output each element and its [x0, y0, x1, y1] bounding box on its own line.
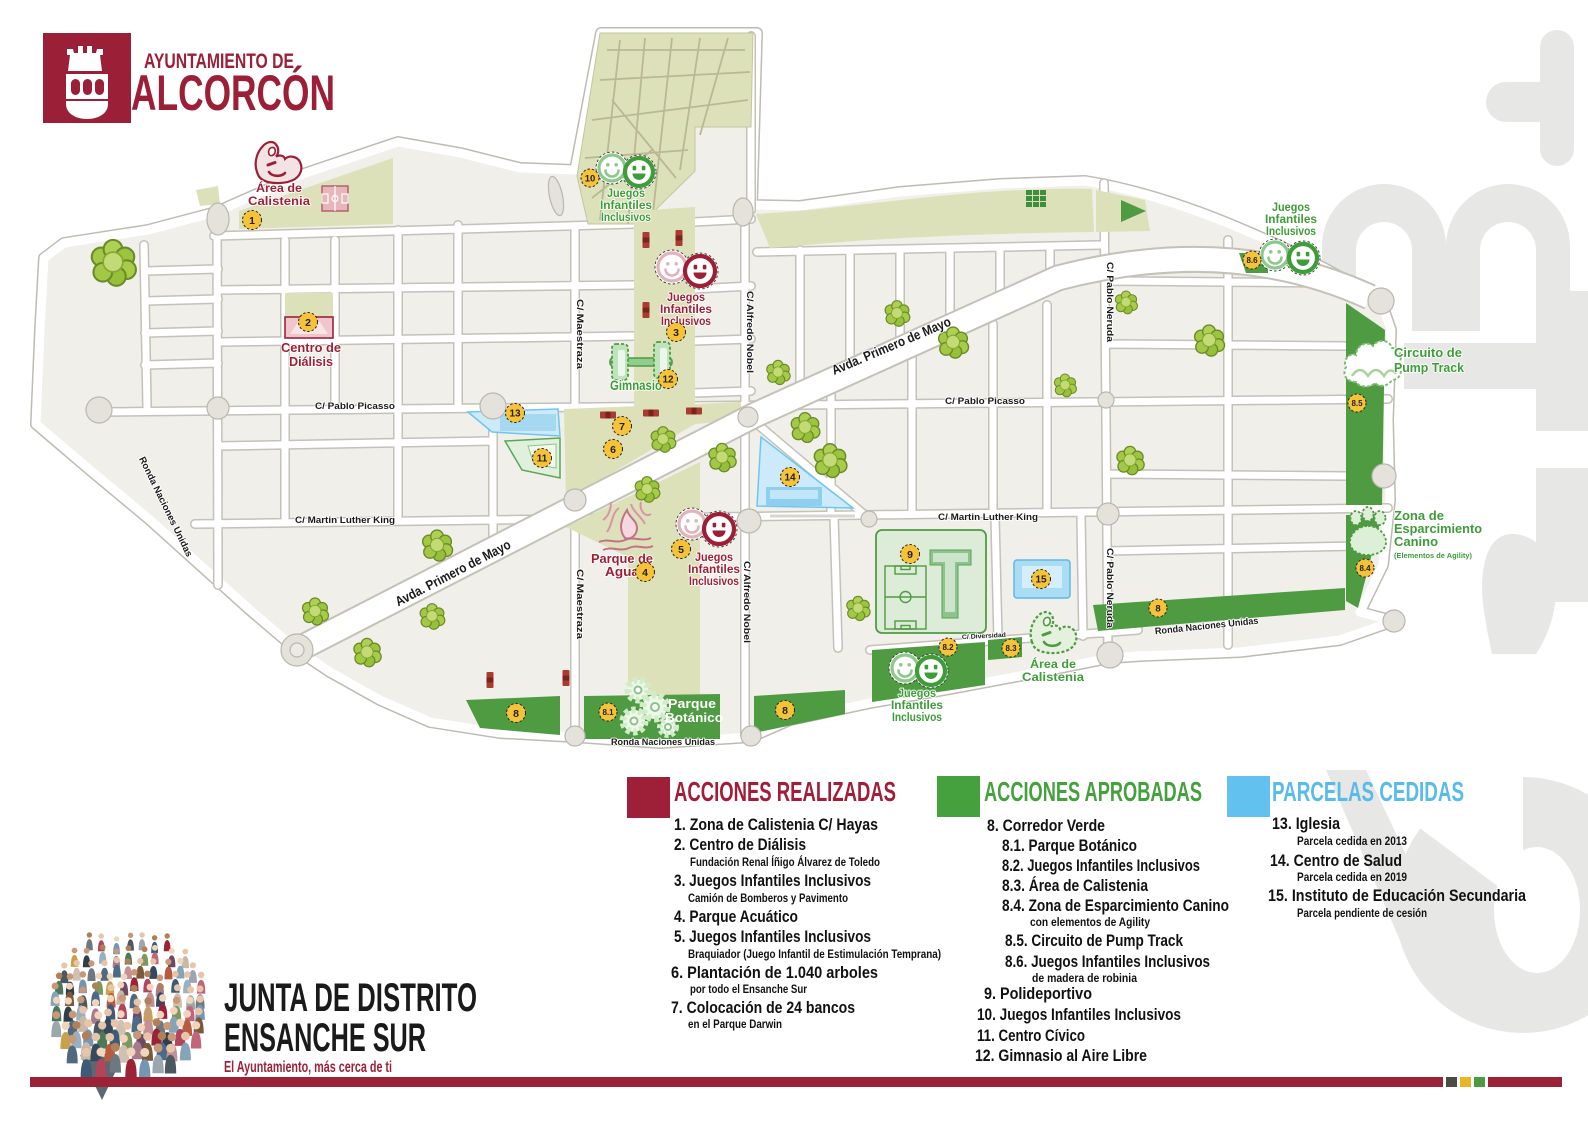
svg-text:5. Juegos Infantiles Inclusivo: 5. Juegos Infantiles Inclusivos [674, 927, 871, 946]
svg-text:Camión de Bomberos y Pavimento: Camión de Bomberos y Pavimento [688, 891, 848, 905]
svg-text:10: 10 [585, 173, 596, 184]
svg-text:Inclusivos: Inclusivos [892, 712, 942, 724]
svg-text:Parque: Parque [668, 696, 716, 711]
svg-text:C/ Pablo Neruda: C/ Pablo Neruda [1104, 262, 1115, 343]
svg-text:3: 3 [673, 327, 679, 339]
svg-text:8: 8 [513, 708, 519, 720]
svg-text:Juegos: Juegos [607, 188, 645, 200]
svg-text:Juegos: Juegos [1272, 202, 1310, 214]
svg-text:PARCELAS CEDIDAS: PARCELAS CEDIDAS [1272, 776, 1464, 807]
svg-text:Parcela cedida en 2013: Parcela cedida en 2013 [1297, 834, 1407, 848]
svg-text:C/ Alfredo Nobel: C/ Alfredo Nobel [744, 291, 755, 373]
svg-text:Ronda Naciones Unidas: Ronda Naciones Unidas [611, 737, 715, 748]
svg-text:de madera de robinia: de madera de robinia [1032, 971, 1137, 985]
svg-text:ACCIONES REALIZADAS: ACCIONES REALIZADAS [674, 776, 896, 807]
svg-text:por todo el Ensanche Sur: por todo el Ensanche Sur [690, 982, 807, 996]
svg-text:con elementos de Agility: con elementos de Agility [1030, 915, 1150, 929]
svg-text:Braquiador (Juego Infantil de: Braquiador (Juego Infantil de Estimulaci… [688, 947, 941, 961]
svg-text:ALCORCÓN: ALCORCÓN [131, 65, 335, 121]
svg-text:ENSANCHE SUR: ENSANCHE SUR [224, 1016, 426, 1060]
svg-text:15. Instituto de Educación Sec: 15. Instituto de Educación Secundaria [1268, 886, 1526, 905]
svg-text:12. Gimnasio al Aire Libre: 12. Gimnasio al Aire Libre [975, 1046, 1147, 1065]
svg-text:Parcela pendiente de cesión: Parcela pendiente de cesión [1297, 906, 1427, 920]
svg-text:13: 13 [509, 409, 521, 420]
svg-text:8.2: 8.2 [942, 643, 954, 652]
svg-text:ACCIONES APROBADAS: ACCIONES APROBADAS [984, 776, 1202, 807]
svg-text:C/ Pablo Picasso: C/ Pablo Picasso [315, 401, 395, 412]
svg-text:Juegos: Juegos [898, 688, 936, 700]
svg-text:7. Colocación de 24 bancos: 7. Colocación de 24 bancos [671, 998, 855, 1017]
svg-text:6. Plantación de 1.040 arboles: 6. Plantación de 1.040 arboles [671, 963, 878, 982]
svg-text:Canino: Canino [1394, 535, 1438, 549]
svg-text:11. Centro Cívico: 11. Centro Cívico [977, 1026, 1085, 1045]
svg-text:Gimnasio: Gimnasio [610, 377, 662, 393]
svg-text:Parcela cedida en 2019: Parcela cedida en 2019 [1297, 870, 1407, 884]
svg-text:Agua: Agua [605, 565, 640, 579]
svg-text:9: 9 [907, 549, 913, 561]
svg-text:(Elementos de Agility): (Elementos de Agility) [1394, 551, 1472, 560]
svg-text:8.2. Juegos Infantiles Inclusi: 8.2. Juegos Infantiles Inclusivos [1002, 856, 1200, 875]
svg-text:8.5: 8.5 [1351, 399, 1363, 408]
svg-text:C/ Martin Luther King: C/ Martin Luther King [938, 512, 1038, 523]
svg-text:8.1: 8.1 [602, 708, 614, 717]
svg-text:Calistenia: Calistenia [1022, 670, 1084, 684]
svg-text:6: 6 [610, 444, 616, 456]
svg-text:Zona de: Zona de [1394, 509, 1444, 523]
svg-text:8.1. Parque Botánico: 8.1. Parque Botánico [1002, 836, 1137, 855]
svg-text:4: 4 [642, 567, 648, 579]
svg-text:4. Parque Acuático: 4. Parque Acuático [674, 907, 798, 926]
svg-text:Infantiles: Infantiles [660, 304, 712, 316]
svg-text:7: 7 [619, 421, 625, 433]
svg-text:15: 15 [1035, 575, 1047, 586]
svg-text:Inclusivos: Inclusivos [601, 212, 651, 224]
svg-text:Esparcimiento: Esparcimiento [1394, 522, 1482, 536]
svg-text:14. Centro de Salud: 14. Centro de Salud [1270, 851, 1402, 870]
svg-text:Botánico: Botánico [665, 710, 723, 725]
svg-text:Juegos: Juegos [695, 552, 733, 564]
svg-text:C/ Pablo Neruda: C/ Pablo Neruda [1104, 548, 1115, 629]
svg-text:8: 8 [1155, 603, 1160, 614]
svg-text:3. Juegos Infantiles Inclusivo: 3. Juegos Infantiles Inclusivos [674, 871, 871, 890]
svg-text:JUNTA DE DISTRITO: JUNTA DE DISTRITO [224, 976, 477, 1020]
svg-text:12: 12 [662, 375, 674, 386]
svg-text:Juegos: Juegos [667, 292, 705, 304]
svg-text:5: 5 [678, 544, 684, 556]
svg-text:8.3. Área de Calistenia: 8.3. Área de Calistenia [1002, 876, 1148, 895]
svg-text:8.4: 8.4 [1359, 564, 1371, 573]
svg-text:C/ Maestraza: C/ Maestraza [574, 569, 585, 640]
svg-text:8: 8 [782, 705, 788, 717]
svg-text:8.5. Circuito de Pump Track: 8.5. Circuito de Pump Track [1005, 931, 1183, 950]
svg-text:Área de: Área de [256, 180, 302, 195]
svg-text:Circuito de: Circuito de [1394, 345, 1462, 360]
svg-text:Inclusivos: Inclusivos [1266, 226, 1316, 238]
svg-text:C/ Alfredo Nobel: C/ Alfredo Nobel [741, 561, 752, 643]
svg-text:13. Iglesia: 13. Iglesia [1272, 814, 1340, 833]
svg-text:Calistenia: Calistenia [248, 194, 310, 208]
svg-text:Infantiles: Infantiles [891, 700, 943, 712]
svg-text:2. Centro de Diálisis: 2. Centro de Diálisis [674, 835, 806, 854]
svg-text:Diálisis: Diálisis [289, 355, 333, 369]
svg-text:Pump Track: Pump Track [1394, 360, 1465, 375]
svg-text:14: 14 [784, 473, 796, 484]
svg-text:10. Juegos Infantiles Inclusiv: 10. Juegos Infantiles Inclusivos [977, 1005, 1181, 1024]
svg-text:8.6. Juegos Infantiles Inclusi: 8.6. Juegos Infantiles Inclusivos [1005, 952, 1210, 971]
svg-text:8.4. Zona de Esparcimiento Can: 8.4. Zona de Esparcimiento Canino [1002, 896, 1229, 915]
svg-text:Infantiles: Infantiles [1265, 214, 1317, 226]
svg-text:2: 2 [305, 317, 311, 329]
svg-text:8.3: 8.3 [1005, 644, 1017, 653]
svg-text:8. Corredor Verde: 8. Corredor Verde [987, 816, 1105, 835]
svg-text:Fundación Renal Íñigo Álvarez: Fundación Renal Íñigo Álvarez de Toledo [690, 854, 880, 869]
svg-text:C/ Pablo Picasso: C/ Pablo Picasso [945, 396, 1025, 407]
svg-text:Inclusivos: Inclusivos [689, 576, 739, 588]
svg-text:9. Polideportivo: 9. Polideportivo [984, 984, 1092, 1003]
svg-text:1: 1 [249, 215, 255, 227]
svg-text:Centro de: Centro de [281, 341, 341, 355]
svg-text:1. Zona de Calistenia C/ Hayas: 1. Zona de Calistenia C/ Hayas [674, 815, 878, 834]
svg-text:Área de: Área de [1030, 656, 1076, 671]
svg-text:11: 11 [537, 454, 548, 465]
svg-text:C/ Martin Luther King: C/ Martin Luther King [295, 515, 395, 526]
svg-text:Infantiles: Infantiles [688, 564, 740, 576]
svg-text:El Ayuntamiento, más cerca de: El Ayuntamiento, más cerca de ti [224, 1059, 392, 1076]
svg-text:8.6: 8.6 [1246, 256, 1258, 265]
svg-text:en el Parque Darwin: en el Parque Darwin [688, 1017, 782, 1031]
svg-text:Infantiles: Infantiles [600, 200, 652, 212]
svg-text:C/ Maestraza: C/ Maestraza [574, 299, 585, 370]
